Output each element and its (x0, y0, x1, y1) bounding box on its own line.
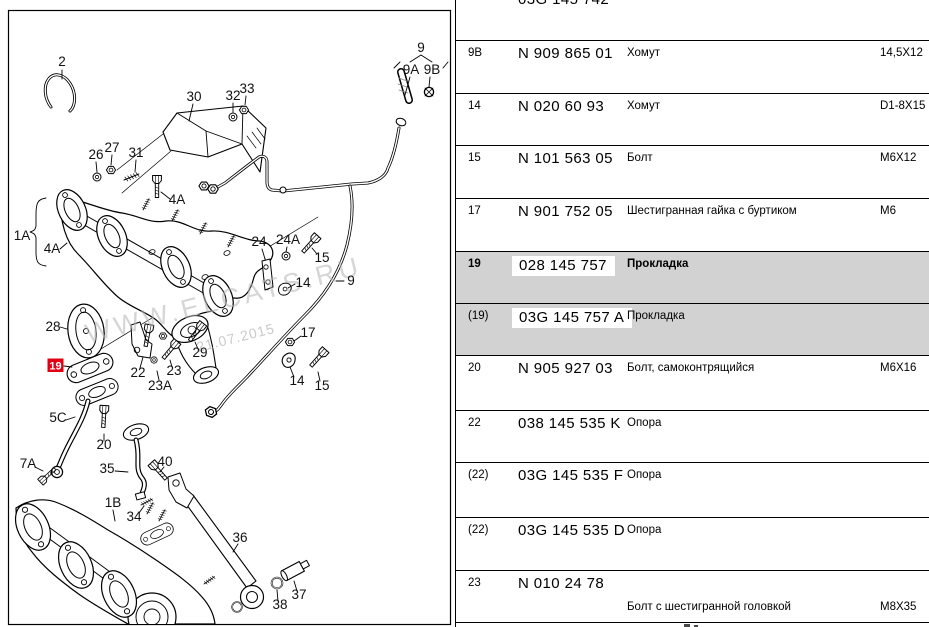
callout-5c[interactable]: 5C (49, 410, 67, 425)
callout-29[interactable]: 29 (192, 345, 207, 360)
part-dimension: D1-8X15 (880, 100, 925, 112)
callout-36[interactable]: 36 (232, 530, 247, 545)
callout-14l[interactable]: 14 (289, 373, 305, 388)
callout-40[interactable]: 40 (157, 454, 172, 469)
table-row[interactable]: 14 N 020 60 93 Хомут D1-8X15 (456, 93, 929, 145)
callout-30[interactable]: 30 (186, 89, 201, 104)
part-dimension: M8X35 N 015 401 (880, 577, 929, 622)
dimension-line: M8X35 (880, 601, 929, 613)
table-row[interactable]: 23 N 010 24 78 Болт с шестигранной голов… (456, 570, 929, 622)
nut-small (159, 333, 167, 339)
part-description: Шестигранная гайка с буртиком (627, 205, 797, 217)
part-description: Прокладка (627, 310, 685, 322)
part-description: Хомут (627, 100, 660, 112)
part-number: 028 145 757 (512, 256, 615, 276)
table-row[interactable]: 22 038 145 535 K Опора (456, 410, 929, 462)
part-number: 03G 145 535 F (518, 467, 623, 484)
callout-2[interactable]: 2 (58, 54, 66, 69)
callout-20[interactable]: 20 (96, 437, 111, 452)
part-description: Опора (627, 524, 661, 536)
table-row[interactable]: (22) 03G 145 535 F Опора (456, 462, 929, 517)
part-number: 03G 145 742 (518, 0, 609, 8)
part-number: N 010 24 78 (518, 575, 604, 592)
nut-27 (106, 166, 115, 173)
washer-26 (93, 173, 101, 181)
part-number: 03G 145 757 A (512, 308, 632, 328)
callout-37[interactable]: 37 (291, 587, 306, 602)
callout-28[interactable]: 28 (45, 319, 60, 334)
part-dimension: 14,5X12 (880, 47, 923, 59)
exhaust-manifold-turbo-diagram: WWW.ELCATS.RU 21.07.2015 (0, 0, 455, 627)
part-number-text: 03G 145 757 A (512, 308, 632, 328)
part-number: 038 145 535 K (518, 415, 621, 432)
part-number: N 909 865 01 (518, 45, 613, 62)
position-number: 17 (468, 205, 481, 217)
callout-24a[interactable]: 24A (276, 232, 300, 247)
callout-9a[interactable]: 9A (403, 62, 420, 77)
table-row-selected[interactable]: (19) 03G 145 757 A Прокладка (456, 303, 929, 355)
callout-9[interactable]: 9 (417, 40, 425, 55)
position-number: 20 (468, 362, 481, 374)
position-number: 15 (468, 152, 481, 164)
callout-32[interactable]: 32 (225, 88, 240, 103)
callout-24[interactable]: 24 (251, 234, 267, 249)
callout-38[interactable]: 38 (272, 597, 287, 612)
table-row-selected[interactable]: 19 028 145 757 Прокладка (456, 251, 929, 303)
washer-32 (229, 113, 237, 121)
position-number: (22) (468, 469, 488, 481)
callout-34[interactable]: 34 (126, 509, 142, 524)
callout-33[interactable]: 33 (239, 81, 254, 96)
position-number: (22) (468, 524, 488, 536)
part-number: 03G 145 535 D (518, 522, 625, 539)
callout-31[interactable]: 31 (128, 145, 143, 160)
callout-17[interactable]: 17 (300, 325, 315, 340)
part-number: N 901 752 05 (518, 203, 613, 220)
washer-23a (151, 357, 157, 363)
highlight-label: 19 (49, 361, 61, 373)
part-dimension: M6X16 (880, 362, 916, 374)
callout-23a[interactable]: 23A (148, 378, 172, 393)
callout-1a[interactable]: 1A (14, 228, 31, 243)
callout-15t[interactable]: 15 (314, 250, 329, 265)
highlighted-callout-19[interactable]: 19 (48, 359, 64, 373)
callout-14t[interactable]: 14 (295, 275, 311, 290)
callout-15l[interactable]: 15 (314, 378, 329, 393)
callout-26[interactable]: 26 (88, 147, 103, 162)
position-number: 9B (468, 47, 482, 59)
parts-list-panel: 03G 145 742 9B N 909 865 01 Хомут 14,5X1… (455, 0, 929, 627)
callout-23[interactable]: 23 (166, 363, 181, 378)
part-dimension: M6 (880, 205, 896, 217)
table-row[interactable]: 17 N 901 752 05 Шестигранная гайка с бур… (456, 198, 929, 251)
part-number-text: 028 145 757 (512, 256, 615, 276)
part-description: Опора (627, 417, 661, 429)
table-row[interactable]: (22) 03G 145 535 D Опора (456, 517, 929, 570)
position-number: 22 (468, 417, 481, 429)
part-dimension: M6X12 (880, 152, 916, 164)
part-description: Прокладка (627, 258, 688, 270)
table-row[interactable]: 15 N 101 563 05 Болт M6X12 (456, 145, 929, 198)
table-row[interactable]: 20 N 905 927 03 Болт, самоконтрящийся M6… (456, 355, 929, 410)
part-description: Болт, самоконтрящийся (627, 362, 754, 374)
position-number: 19 (468, 258, 481, 270)
etka-parts-page: WWW.ELCATS.RU 21.07.2015 (0, 0, 929, 627)
part-number: N 020 60 93 (518, 98, 604, 115)
position-number: (19) (468, 310, 488, 322)
callout-35[interactable]: 35 (99, 461, 114, 476)
callout-4a[interactable]: 4A (169, 192, 186, 207)
part-number: N 101 563 05 (518, 150, 613, 167)
nut-33 (239, 106, 248, 113)
description-line: Болт с шестигранной головкой (627, 601, 857, 613)
part-description: Болт (627, 152, 653, 164)
callout-22[interactable]: 22 (130, 365, 145, 380)
table-row[interactable]: 9B N 909 865 01 Хомут 14,5X12 (456, 40, 929, 93)
callout-27[interactable]: 27 (104, 140, 119, 155)
position-number: 23 (468, 577, 481, 589)
callout-1b[interactable]: 1B (105, 495, 122, 510)
position-number: 14 (468, 100, 481, 112)
callout-9b[interactable]: 9B (424, 62, 441, 77)
part-number: N 905 927 03 (518, 360, 613, 377)
table-row-partial-bottom (456, 622, 929, 627)
part-description: Болт с шестигранной головкой использоват… (627, 577, 857, 622)
callout-7a[interactable]: 7A (20, 456, 37, 471)
part-description: Опора (627, 469, 661, 481)
callout-9r[interactable]: 9 (347, 273, 355, 288)
table-row-partial-top[interactable]: 03G 145 742 (456, 0, 929, 40)
callout-4a2[interactable]: 4A (44, 241, 61, 256)
part-description: Хомут (627, 47, 660, 59)
exploded-diagram-panel: WWW.ELCATS.RU 21.07.2015 (0, 0, 455, 627)
